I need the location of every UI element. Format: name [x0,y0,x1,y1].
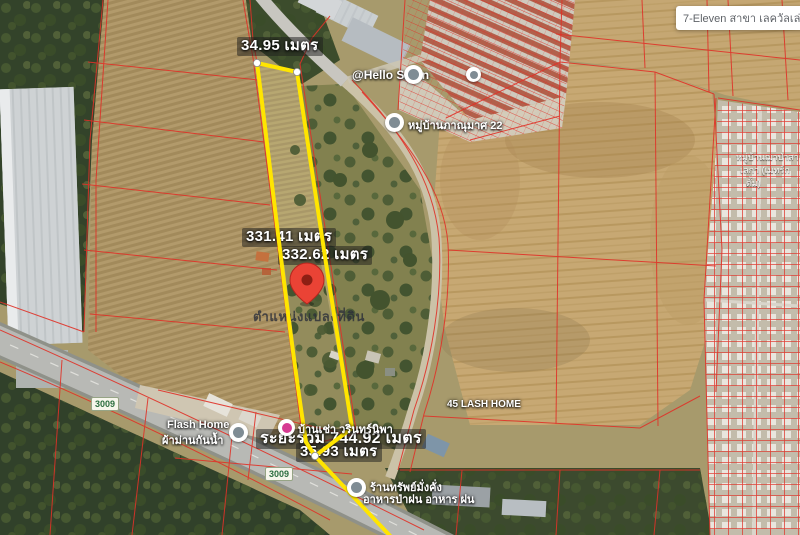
poi-label-flash-home-sub[interactable]: ผ้าม่านกันน้ำ [162,431,223,449]
measurement-top-edge: 34.95 เมตร [237,37,323,56]
poi-label-restaurant-sub[interactable]: อาหารป่าฝน อาหาร ฝน [363,490,474,508]
map-canvas[interactable]: 331.41 เมตร 332.62 เมตร ตำแหน่งแปลงที่ดิ… [0,0,800,535]
route-shield-3009-b: 3009 [265,467,293,481]
poi-label-house-rent[interactable]: บ้านเช่า วรินทร์นิพา [298,420,393,438]
poi-label-flash-home[interactable]: Flash Home [167,419,229,431]
poi-label-right-area-1[interactable]: หมู่บ้านฌาป่าสา [736,150,799,164]
place-tooltip: 7-Eleven สาขา เลควัลเล่ย์ (บุ [676,6,800,30]
poi-label-village[interactable]: หมู่บ้านภาณุมาศ 22 [408,116,503,134]
poi-village-icon[interactable] [385,113,404,132]
poi-icon[interactable] [466,67,481,82]
poi-house-rent-icon[interactable] [278,419,295,436]
poi-hello-salon-icon[interactable] [404,65,423,84]
poi-flash-home-icon[interactable] [229,423,248,442]
poi-label-right-area-3[interactable]: ตั้ม) [746,176,761,190]
route-shield-3009-a: 3009 [91,397,119,411]
poi-label-lash-home[interactable]: 45 LASH HOME [447,399,521,410]
poi-label-right-area-2[interactable]: เลกา (เมทร์ก [740,163,790,177]
